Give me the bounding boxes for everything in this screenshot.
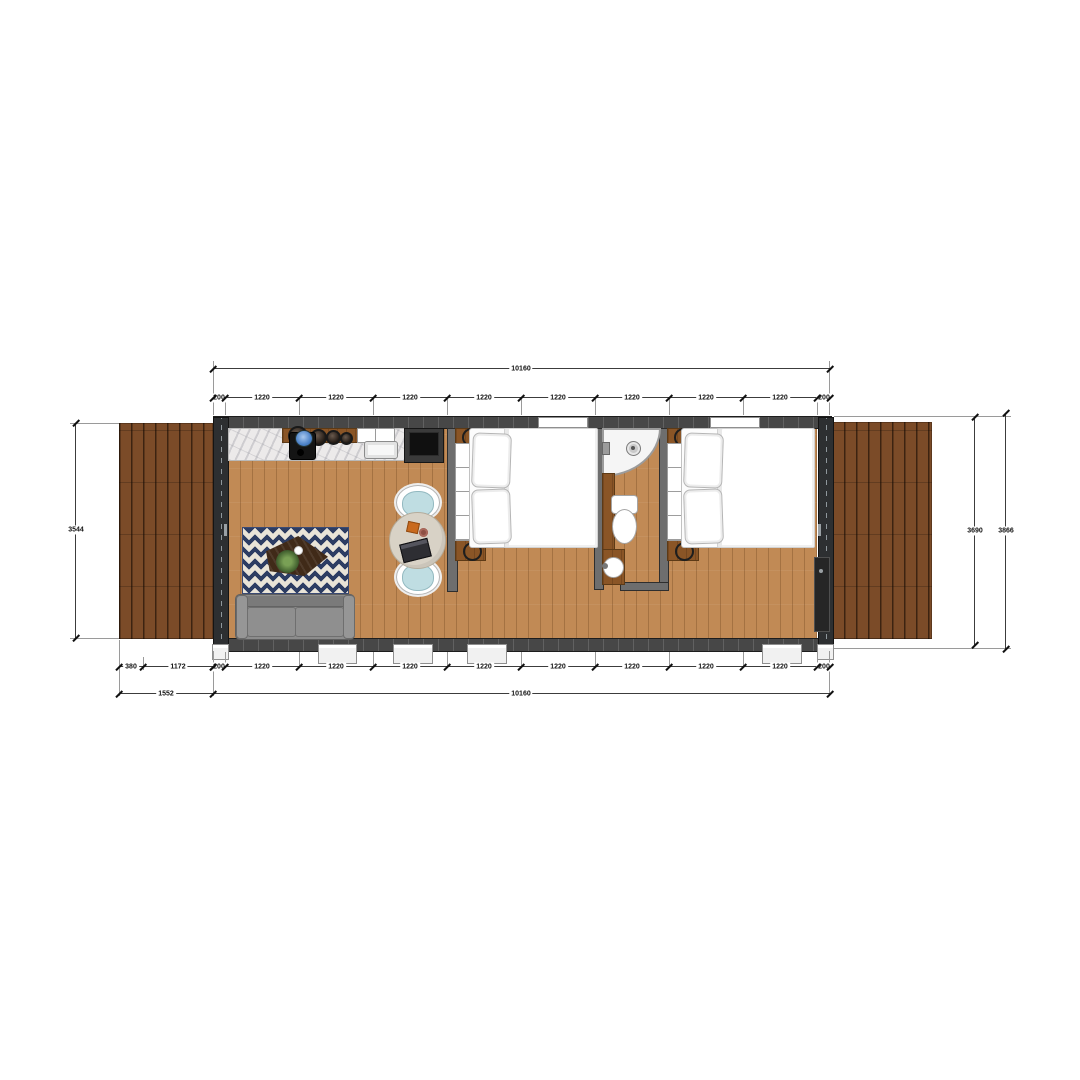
bedroom2-door <box>814 557 830 632</box>
dim-line-top-total: 10160 <box>213 368 830 369</box>
pillow <box>471 488 512 544</box>
dim-line-right-outer: 3866 <box>1005 413 1006 649</box>
extension-line <box>834 648 1011 649</box>
sofa-arm-right <box>343 595 355 639</box>
extension-line <box>669 399 670 415</box>
dim-line-bottom-segments: 200 1220 1220 1220 1220 1220 1220 1220 1… <box>213 666 830 667</box>
window-top-bed1 <box>538 417 588 428</box>
sofa <box>235 594 355 640</box>
dim-label: 1220 <box>548 393 568 402</box>
pot-small <box>326 430 341 445</box>
dim-label: 1220 <box>400 393 420 402</box>
dim-label: 3866 <box>997 526 1015 535</box>
extension-line <box>299 399 300 415</box>
deck-left <box>119 423 213 639</box>
dim-label: 1220 <box>474 393 494 402</box>
notebook <box>406 521 420 534</box>
dim-line-top-segments: 200 1220 1220 1220 1220 1220 1220 1220 1… <box>213 397 830 398</box>
pillow <box>471 432 512 488</box>
extension-line <box>447 399 448 415</box>
pillow <box>683 432 724 488</box>
deck-right <box>832 422 932 639</box>
window-sill-4 <box>762 644 802 664</box>
pot-mini <box>340 432 353 445</box>
kitchen-sink <box>364 441 398 459</box>
bathroom-south-wall <box>620 582 669 591</box>
dim-label: 1220 <box>696 393 716 402</box>
sofa-back <box>237 596 352 607</box>
bowl <box>419 528 428 537</box>
toilet-bowl <box>612 509 637 544</box>
cooktop-burner <box>297 449 304 456</box>
dim-label: 1552 <box>156 689 176 698</box>
bed-1 <box>469 428 597 548</box>
door-handle <box>819 569 823 573</box>
door-handle-left <box>224 524 227 536</box>
dim-label: 1220 <box>252 662 272 671</box>
bath-faucet <box>602 563 608 569</box>
window-sill-1 <box>318 644 357 664</box>
duvet <box>717 428 815 548</box>
extension-line <box>373 399 374 415</box>
window-sill-3 <box>467 644 507 664</box>
sofa-cushion-left <box>247 607 296 637</box>
wall-end-cap-right <box>817 644 834 660</box>
door-handle-right <box>818 524 821 536</box>
dim-label: 1172 <box>168 662 187 671</box>
bed-2 <box>681 428 814 548</box>
wall-end-cap-left <box>212 644 229 660</box>
extension-line <box>70 638 119 639</box>
extension-line <box>743 399 744 415</box>
dim-label: 1220 <box>326 393 346 402</box>
duvet <box>504 428 598 548</box>
dim-label: 1220 <box>770 662 790 671</box>
window-top-bed2 <box>710 417 760 428</box>
extension-line <box>829 651 830 696</box>
dim-label: 1220 <box>252 393 272 402</box>
dim-label: 380 <box>123 662 139 671</box>
extension-line <box>834 416 1011 417</box>
dim-line-bottom-totals: 1552 10160 <box>119 693 830 694</box>
dim-label: 1220 <box>400 662 420 671</box>
floor-plan-canvas: 10160 200 1220 1220 1220 1220 1220 1220 … <box>0 0 1080 1080</box>
shower-valve <box>602 442 610 455</box>
shower-drain <box>631 446 635 450</box>
wall-bottom <box>213 638 832 652</box>
dim-label: 10160 <box>509 364 532 373</box>
dim-label: 3690 <box>966 526 984 535</box>
sofa-cushion-right <box>295 607 344 637</box>
pillow <box>683 488 724 544</box>
dim-label: 1220 <box>622 393 642 402</box>
dim-line-left-depth: 3544 <box>75 423 76 638</box>
table-decor <box>294 546 303 555</box>
dim-label: 1220 <box>474 662 494 671</box>
dim-line-deck-segments: 380 1172 <box>119 666 213 667</box>
oven-door <box>409 432 439 456</box>
dim-label: 1220 <box>696 662 716 671</box>
extension-line <box>70 423 119 424</box>
dim-label: 1220 <box>770 393 790 402</box>
extension-line <box>119 640 120 696</box>
extension-line <box>521 399 522 415</box>
pan-on-cooktop <box>295 430 313 447</box>
window-sill-2 <box>393 644 433 664</box>
dim-line-right-inner: 3690 <box>974 417 975 645</box>
dim-label: 1220 <box>326 662 346 671</box>
dim-label: 1220 <box>548 662 568 671</box>
extension-line <box>213 651 214 696</box>
dim-label: 3544 <box>67 525 85 534</box>
extension-line <box>595 399 596 415</box>
dim-label: 1220 <box>622 662 642 671</box>
dim-label: 10160 <box>509 689 532 698</box>
